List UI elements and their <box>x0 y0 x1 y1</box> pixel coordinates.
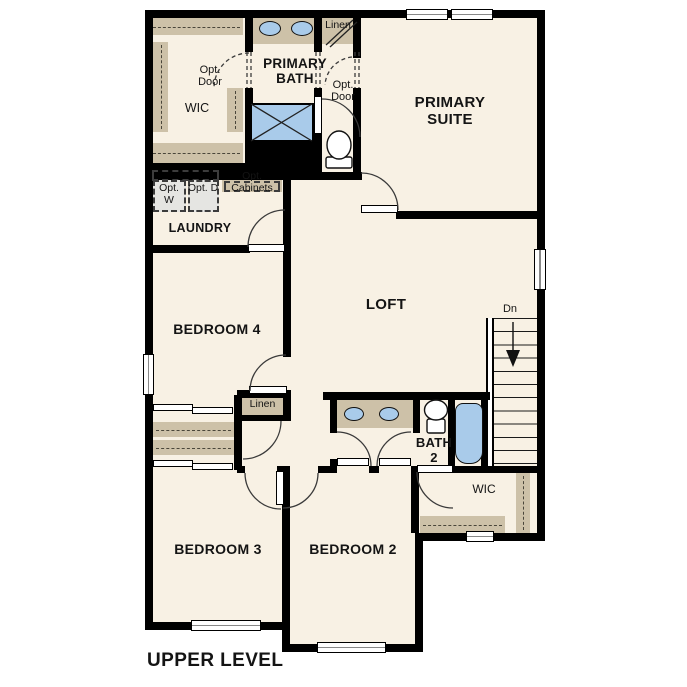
window-wic2 <box>466 531 494 542</box>
wic-shelf-left <box>153 42 168 132</box>
wall-bath2-top <box>323 392 490 400</box>
door-leaf-bedroom3-bedroom2 <box>276 471 284 505</box>
wic-shelf-bottom <box>150 143 243 163</box>
wall-laundry-bottom <box>145 245 250 253</box>
closet-slider-bedroom4-b <box>192 407 233 414</box>
annotation-opt-cabinets: Opt. Cabinets <box>222 171 282 195</box>
door-leaf-laundry <box>248 244 285 252</box>
wall-bath2-bottom-c <box>453 466 537 473</box>
wall-bath2-left-stub <box>330 459 337 473</box>
wic-shelf-right <box>227 88 243 132</box>
room-label-bath2: BATH 2 <box>412 436 456 465</box>
stair-treads <box>494 318 537 466</box>
door-leaf-wic2 <box>417 465 453 473</box>
wall-wic-bath-upper <box>245 18 253 52</box>
wall-bath2-toilet-left <box>413 398 420 433</box>
room-label-bedroom3: BEDROOM 3 <box>158 542 278 558</box>
label-linen-hall: Linen <box>240 399 285 411</box>
room-label-bedroom2: BEDROOM 2 <box>293 542 413 558</box>
floor-plan: PRIMARY BATH WIC Opt. Door Opt. Door Lin… <box>0 0 687 687</box>
window-primary-suite-2 <box>451 9 493 20</box>
closet-shelf-bedroom3 <box>153 440 234 455</box>
shower-primary <box>250 103 314 142</box>
wic2-shelf-right <box>516 473 530 533</box>
wall-hall-top <box>283 172 362 180</box>
wall-laundry-bedroom4-right <box>283 172 291 357</box>
wall-exterior-left <box>145 10 153 630</box>
closet-slider-bedroom4-a <box>153 404 193 411</box>
room-label-primary-wic: WIC <box>177 101 217 115</box>
plan-title: UPPER LEVEL <box>147 650 367 671</box>
sink-bath2-1 <box>344 407 364 421</box>
wall-linen-hall-bottom <box>237 415 290 421</box>
room-label-wic2: WIC <box>466 483 502 497</box>
sink-bath2-2 <box>379 407 399 421</box>
door-leaf-bedroom4 <box>249 386 287 394</box>
sink-primary-1 <box>259 21 281 36</box>
window-bedroom4 <box>143 354 154 395</box>
room-label-primary-suite: PRIMARY SUITE <box>400 95 500 129</box>
closet-slider-bedroom3-b <box>192 463 233 470</box>
wic-shelf-top <box>150 18 243 35</box>
label-linen-upper: Linen <box>321 20 355 32</box>
wall-hall-bottom-a <box>237 466 245 473</box>
room-label-bedroom4: BEDROOM 4 <box>157 322 277 338</box>
window-loft-right <box>534 249 546 290</box>
sink-primary-2 <box>291 21 313 36</box>
door-leaf-primary-suite <box>361 205 398 213</box>
annotation-opt-dryer: Opt. D <box>187 183 219 195</box>
closet-slider-bedroom3-a <box>153 460 193 467</box>
bathtub-bath2 <box>455 403 483 464</box>
annotation-opt-door-wic: Opt. Door <box>188 64 232 89</box>
annotation-stairs-down: Dn <box>495 303 525 315</box>
window-bedroom3 <box>191 620 261 631</box>
wall-wic2-left <box>411 473 419 533</box>
window-primary-suite-1 <box>406 9 448 20</box>
annotation-opt-door-suite: Opt. Door <box>321 79 365 104</box>
wall-bedroom2-right <box>415 533 423 652</box>
room-label-loft: LOFT <box>346 297 426 314</box>
wall-primary-suite-bottom <box>396 211 545 219</box>
room-label-laundry: LAUNDRY <box>160 221 240 235</box>
wall-bath2-bottom-a <box>369 466 379 473</box>
door-leaf-bath2-right <box>379 458 411 466</box>
door-leaf-bath2-left <box>337 458 369 466</box>
annotation-opt-washer: Opt. W <box>153 183 185 207</box>
wall-below-shower <box>245 138 322 165</box>
closet-shelf-bedroom4 <box>153 422 234 437</box>
